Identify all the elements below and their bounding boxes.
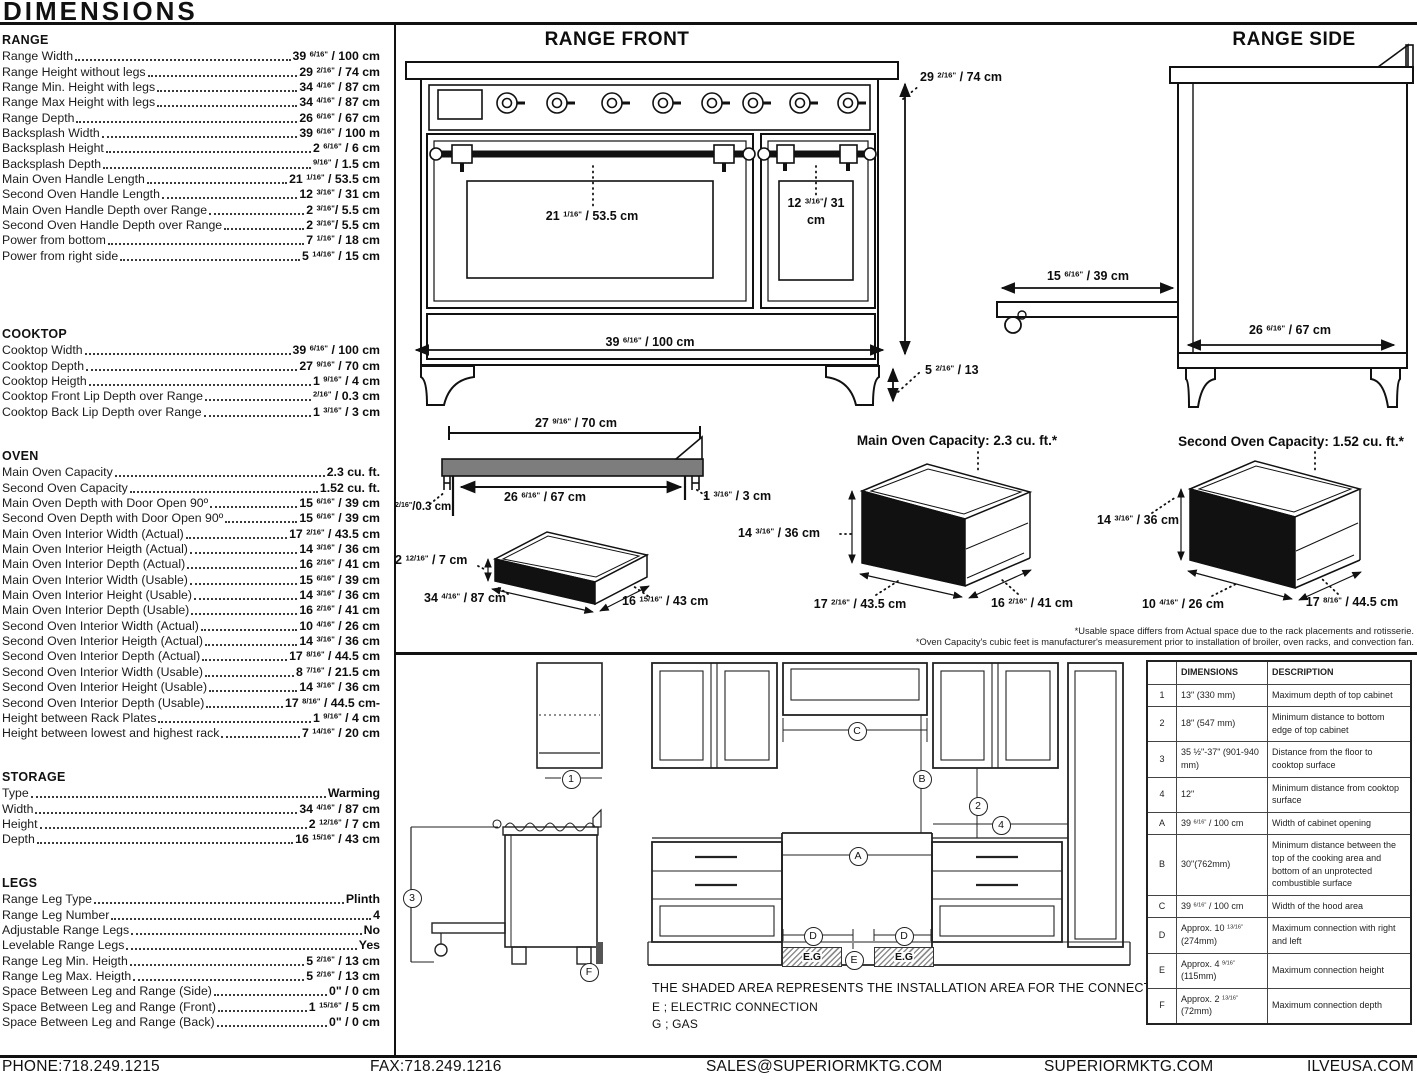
spec-row: Height 2 12/16" / 7 cm [2,816,380,831]
row-id: A [1147,812,1177,835]
second-oven-width-dim: 10 4/16" / 26 cm [1142,597,1224,611]
dotted-leader [210,506,297,508]
cooktop-inner-dim: 26 6/16" / 67 cm [504,490,586,504]
spec-value: Yes [359,938,380,952]
spec-value: 39 6/16" / 100 cm [293,343,381,357]
dotted-leader [190,583,297,585]
spec-value: 10 4/16" / 26 cm [299,619,380,633]
spec-label: Power from right side [2,249,118,263]
spec-label: Main Oven Interior Width (Actual) [2,527,184,541]
range-front-title: RANGE FRONT [545,29,690,51]
spec-label: Space Between Leg and Range (Front) [2,1000,216,1014]
callout-A: A [849,847,868,866]
spec-label: Range Leg Min. Heigth [2,954,128,968]
spec-label: Second Oven Interior Height (Usable) [2,680,207,694]
dotted-leader [191,613,297,615]
oven-spec-list: Main Oven Capacity 2.3 cu. ft. Second Ov… [2,464,380,740]
second-oven-height-dim: 14 3/16" / 36 cm [1097,513,1179,527]
spec-label: Second Oven Interior Width (Actual) [2,619,199,633]
spec-label: Range Leg Max. Heigth [2,969,131,983]
dotted-leader [217,1025,327,1027]
callout-3: 3 [403,889,422,908]
spec-row: Height between Rack Plates 1 9/16" / 4 c… [2,710,380,725]
callout-B: B [913,770,932,789]
spec-row: Main Oven Depth with Door Open 90º 15 6/… [2,495,380,510]
callout-C: C [848,722,867,741]
spec-value: 7 1/16" / 18 cm [306,233,380,247]
table-corner [1147,661,1177,684]
dotted-leader [148,75,298,77]
spec-row: Main Oven Capacity 2.3 cu. ft. [2,464,380,479]
table-row: 2 18" (547 mm) Minimum distance to botto… [1147,707,1411,742]
table-header-dimensions: DIMENSIONS [1177,661,1268,684]
spec-row: Range Leg Max. Heigth 5 2/16" / 13 cm [2,968,380,983]
row-id: 4 [1147,777,1177,812]
spec-value: 1 3/16" / 3 cm [313,405,380,419]
spec-value: 16 15/16" / 43 cm [295,832,380,846]
dotted-leader [187,567,297,569]
spec-row: Space Between Leg and Range (Front) 1 15… [2,998,380,1013]
spec-value: 15 6/16" / 39 cm [299,511,380,525]
spec-value: Warming [328,786,380,800]
dotted-leader [157,105,297,107]
callout-E: E [845,951,864,970]
spec-row: Second Oven Depth with Door Open 90º 15 … [2,510,380,525]
main-oven-handle [430,145,755,172]
section-heading: STORAGE [2,770,380,784]
spec-row: Backsplash Depth 9/16" / 1.5 cm [2,155,380,170]
dotted-leader [115,475,325,477]
spec-value: 14 3/16" / 36 cm [299,680,380,694]
top-diagrams-drawing [394,22,1417,655]
row-id: 1 [1147,684,1177,707]
section-heading: RANGE [2,33,380,47]
main-oven-capacity-drawing [840,452,1031,598]
dotted-leader [108,243,304,245]
row-dimension: 18" (547 mm) [1177,707,1268,742]
spec-value: 12 3/16" / 31 cm [299,187,380,201]
spec-value: 26 6/16" / 67 cm [299,111,380,125]
row-id: C [1147,895,1177,918]
table-header-description: DESCRIPTION [1268,661,1412,684]
leg-height-dim: 5 2/16" / 13 [925,363,979,377]
section-oven: OVEN Main Oven Capacity 2.3 cu. ft. Seco… [2,449,380,740]
spec-label: Height between Rack Plates [2,711,156,725]
spec-value: 17 8/16" / 44.5 cm [289,649,380,663]
spec-value: 14 3/16" / 36 cm [299,588,380,602]
spec-label: Range Leg Type [2,892,92,906]
shaded-area-label: E.G [894,952,914,963]
spec-value: 1 9/16" / 4 cm [313,374,380,388]
section-range: RANGE Range Width 39 6/16" / 100 cm Rang… [2,33,380,263]
spec-row: Cooktop Front Lip Depth over Range 2/16"… [2,388,380,403]
section-heading: COOKTOP [2,327,380,341]
section-cooktop: COOKTOP Cooktop Width 39 6/16" / 100 cm … [2,327,380,419]
spec-row: Range Depth 26 6/16" / 67 cm [2,109,380,124]
callout-4: 4 [992,816,1011,835]
cooktop-spec-list: Cooktop Width 39 6/16" / 100 cm Cooktop … [2,342,380,419]
spec-value: 27 9/16" / 70 cm [299,359,380,373]
dotted-leader [111,918,371,920]
dimensions-table: DIMENSIONS DESCRIPTION 1 13" (330 mm) Ma… [1146,660,1412,1025]
spec-value: 9/16" / 1.5 cm [313,157,380,171]
dotted-leader [120,259,300,261]
dotted-leader [224,228,304,230]
dotted-leader [35,812,297,814]
dotted-leader [133,979,304,981]
footer-phone: PHONE:718.249.1215 [2,1058,160,1076]
row-dimension: 13" (330 mm) [1177,684,1268,707]
spec-label: Second Oven Capacity [2,481,128,495]
main-oven-depth-dim: 16 2/16" / 41 cm [991,596,1073,610]
dotted-leader [194,598,297,600]
spec-row: Second Oven Interior Depth (Actual) 17 8… [2,648,380,663]
spec-row: Second Oven Interior Depth (Usable) 17 8… [2,694,380,709]
table-header-row: DIMENSIONS DESCRIPTION [1147,661,1411,684]
spec-label: Backsplash Depth [2,157,101,171]
front-left-leg [421,366,474,405]
spec-row: Second Oven Capacity 1.52 cu. ft. [2,479,380,494]
range-depth-dim: 26 6/16" / 67 cm [1249,323,1331,337]
spec-row: Cooktop Back Lip Depth over Range 1 3/16… [2,403,380,418]
cooktop-slab [442,459,703,476]
tall-cabinet [1068,663,1123,947]
dotted-leader [89,384,311,386]
spec-label: Range Depth [2,111,74,125]
table-row: 3 35 ½"-37" (901-940 mm) Distance from t… [1147,742,1411,777]
section-storage: STORAGE Type Warming Width 34 4/16" / 87… [2,770,380,846]
section-heading: OVEN [2,449,380,463]
main-handle-dim: 21 1/16" / 53.5 cm [546,209,638,223]
row-id: B [1147,835,1177,895]
spec-value: 15 6/16" / 39 cm [299,573,380,587]
row-dimension: Approx. 10 13/16" (274mm) [1177,918,1268,953]
spec-value: No [364,923,380,937]
row-id: D [1147,918,1177,953]
spec-label: Cooktop Front Lip Depth over Range [2,389,203,403]
dotted-leader [214,994,327,996]
callout-2: 2 [969,797,988,816]
spec-row: Main Oven Interior Width (Actual) 17 2/1… [2,525,380,540]
footer-site: SUPERIORMKTG.COM [1044,1058,1213,1076]
spec-row: Second Oven Interior Width (Usable) 8 7/… [2,663,380,678]
row-dimension: Approx. 4 9/16" (115mm) [1177,953,1268,988]
spec-row: Second Oven Interior Height (Usable) 14 … [2,679,380,694]
dotted-leader [37,842,293,844]
spec-label: Power from bottom [2,233,106,247]
spec-value: 2 6/16" / 6 cm [313,141,380,155]
footer-email: SALES@SUPERIORMKTG.COM [706,1058,942,1076]
drawer-depth-dim: 16 15/16" / 43 cm [622,594,708,608]
spec-value: 17 8/16" / 44.5 cm- [285,696,380,710]
table-row: A 39 6/16" / 100 cm Width of cabinet ope… [1147,812,1411,835]
spec-label: Backsplash Height [2,141,104,155]
spec-row: Cooktop Width 39 6/16" / 100 cm [2,342,380,357]
shaded-area-label: E.G [802,952,822,963]
side-right-leg [1371,368,1400,407]
spec-label: Cooktop Depth [2,359,84,373]
spec-label: Second Oven Interior Depth (Actual) [2,649,200,663]
dotted-leader [158,721,311,723]
spec-row: Main Oven Interior Height (Usable) 14 3/… [2,587,380,602]
spec-row: Second Oven Interior Width (Actual) 10 4… [2,617,380,632]
spec-row: Range Leg Type Plinth [2,891,380,906]
spec-sheet: DIMENSIONS RANGE Range Width 39 6/16" / … [0,0,1417,1080]
row-description: Minimum distance to bottom edge of top c… [1268,707,1412,742]
control-display [438,90,482,119]
control-knobs [497,93,866,113]
row-description: Width of the hood area [1268,895,1412,918]
storage-spec-list: Type Warming Width 34 4/16" / 87 cm Heig… [2,785,380,846]
spec-row: Levelable Range Legs Yes [2,937,380,952]
spec-row: Cooktop Depth 27 9/16" / 70 cm [2,357,380,372]
spec-row: Space Between Leg and Range (Back) 0" / … [2,1014,380,1029]
main-oven-width-dim: 17 2/16" / 43.5 cm [814,597,906,611]
spec-row: Backsplash Width 39 6/16" / 100 m [2,125,380,140]
installation-note: THE SHADED AREA REPRESENTS THE INSTALLAT… [652,981,1187,995]
row-description: Minimum distance between the top of the … [1268,835,1412,895]
dotted-leader [85,353,291,355]
spec-value: 14 3/16" / 36 cm [299,634,380,648]
spec-row: Height between lowest and highest rack 7… [2,725,380,740]
door-wheel [435,944,447,956]
spec-label: Second Oven Interior Heigth (Actual) [2,634,203,648]
spec-value: 15 6/16" / 39 cm [299,496,380,510]
range-width-dim: 39 6/16" / 100 cm [606,335,695,349]
spec-value: 0" / 0 cm [329,1015,380,1029]
spec-value: 0" / 0 cm [329,984,380,998]
side-view-drawing [411,663,603,965]
row-description: Distance from the floor to cooktop surfa… [1268,742,1412,777]
table-row: 1 13" (330 mm) Maximum depth of top cabi… [1147,684,1411,707]
dotted-leader [209,690,297,692]
dotted-leader [130,491,318,493]
side-left-leg [1186,368,1215,407]
spec-label: Second Oven Depth with Door Open 90º [2,511,223,525]
spec-label: Main Oven Depth with Door Open 90º [2,496,208,510]
spec-label: Range Max Height with legs [2,95,155,109]
spec-value: 2 3/16"/ 5.5 cm [306,203,380,217]
drawer-width-dim: 34 4/16" / 87 cm [424,591,506,605]
spec-row: Main Oven Handle Depth over Range 2 3/16… [2,201,380,216]
door-open-depth-dim: 15 6/16" / 39 cm [1047,269,1129,283]
second-handle-dim: 12 3/16"/ 31 cm [778,195,854,229]
spec-label: Cooktop Back Lip Depth over Range [2,405,202,419]
row-id: E [1147,953,1177,988]
spec-row: Range Leg Number 4 [2,906,380,921]
table-row: F Approx. 2 13/16" (72mm) Maximum connec… [1147,988,1411,1024]
front-lip-dim: 2/16"/0.3 cm [395,501,451,513]
spec-row: Main Oven Handle Length 21 1/16" / 53.5 … [2,171,380,186]
row-dimension: 35 ½"-37" (901-940 mm) [1177,742,1268,777]
second-oven-capacity-drawing [1152,452,1361,600]
row-dimension: 30"(762mm) [1177,835,1268,895]
table-body: 1 13" (330 mm) Maximum depth of top cabi… [1147,684,1411,1024]
spec-label: Space Between Leg and Range (Side) [2,984,212,998]
dotted-leader [221,736,300,738]
row-description: Maximum connection depth [1268,988,1412,1024]
dotted-leader [202,659,287,661]
spec-row: Main Oven Interior Heigth (Actual) 14 3/… [2,541,380,556]
open-door-side [432,923,505,933]
spec-row: Main Oven Interior Depth (Usable) 16 2/1… [2,602,380,617]
spec-label: Main Oven Interior Height (Usable) [2,588,192,602]
dotted-leader [126,948,356,950]
spec-label: Levelable Range Legs [2,938,124,952]
cooktop-width-dim: 27 9/16" / 70 cm [535,416,617,430]
spec-value: 34 4/16" / 87 cm [299,802,380,816]
spec-label: Range Leg Number [2,908,109,922]
legend-gas: G ; GAS [652,1017,698,1031]
spec-row: Range Min. Height with legs 34 4/16" / 8… [2,79,380,94]
callout-D-left: D [804,927,823,946]
spec-value: 5 2/16" / 13 cm [306,969,380,983]
spec-value: 34 4/16" / 87 cm [299,80,380,94]
drawer-height-dim: 2 12/16" / 7 cm [395,553,467,567]
spec-value: 1.52 cu. ft. [320,481,380,495]
spec-label: Main Oven Interior Depth (Actual) [2,557,185,571]
dotted-leader [186,537,287,539]
callout-D-right: D [895,927,914,946]
spec-value: 39 6/16" / 100 cm [293,49,381,63]
spec-row: Main Oven Interior Depth (Actual) 16 2/1… [2,556,380,571]
range-height-dim: 29 2/16" / 74 cm [920,70,1002,84]
shaded-connection-area-left: E.G [782,947,842,967]
spec-label: Range Height without legs [2,65,146,79]
spec-row: Width 34 4/16" / 87 cm [2,800,380,815]
spec-row: Power from right side 5 14/16" / 15 cm [2,247,380,262]
spec-label: Adjustable Range Legs [2,923,129,937]
dotted-leader [106,151,311,153]
dotted-leader [102,136,298,138]
spec-label: Cooktop Heigth [2,374,87,388]
spec-label: Depth [2,832,35,846]
spec-row: Second Oven Handle Depth over Range 2 3/… [2,217,380,232]
hood-cabinet [783,663,927,715]
spec-row: Range Height without legs 29 2/16" / 74 … [2,63,380,78]
dotted-leader [201,629,298,631]
range-front-drawing [406,62,920,405]
spec-label: Main Oven Handle Depth over Range [2,203,207,217]
spec-label: Main Oven Interior Depth (Usable) [2,603,189,617]
footnote-1: *Usable space differs from Actual space … [1075,626,1414,636]
range-side-title: RANGE SIDE [1232,29,1355,51]
row-dimension: Approx. 2 13/16" (72mm) [1177,988,1268,1024]
dotted-leader [94,902,344,904]
dotted-leader [218,1010,307,1012]
legs-spec-list: Range Leg Type Plinth Range Leg Number 4… [2,891,380,1029]
spec-row: Depth 16 15/16" / 43 cm [2,831,380,846]
spec-label: Main Oven Handle Length [2,172,145,186]
range-spec-list: Range Width 39 6/16" / 100 cm Range Heig… [2,48,380,263]
spec-value: 14 3/16" / 36 cm [299,542,380,556]
main-oven-glass [467,181,713,278]
footnote-2: *Oven Capacity's cubic feet is manufactu… [916,637,1414,647]
dotted-leader [206,706,283,708]
front-right-leg [826,366,879,405]
elevation-drawing [648,663,1130,965]
dotted-leader [205,675,294,677]
dotted-leader [190,552,297,554]
row-dimension: 12" [1177,777,1268,812]
spec-label: Type [2,786,29,800]
row-id: 2 [1147,707,1177,742]
spec-value: Plinth [346,892,380,906]
second-oven-depth-dim: 17 8/16" / 44.5 cm [1306,595,1398,609]
dotted-leader [147,182,287,184]
spec-value: 2/16" / 0.3 cm [313,389,380,403]
row-dimension: 39 6/16" / 100 cm [1177,895,1268,918]
spec-value: 21 1/16" / 53.5 cm [289,172,380,186]
dotted-leader [86,369,297,371]
spec-value: 5 2/16" / 13 cm [306,954,380,968]
spec-value: 16 2/16" / 41 cm [299,603,380,617]
footer-site2: ILVEUSA.COM [1307,1058,1414,1076]
spec-value: 2.3 cu. ft. [327,465,380,479]
spec-row: Second Oven Interior Heigth (Actual) 14 … [2,633,380,648]
spec-value: 8 7/16" / 21.5 cm [296,665,380,679]
spec-value: 39 6/16" / 100 m [299,126,380,140]
spec-value: 2 3/16"/ 5.5 cm [306,218,380,232]
spec-value: 17 2/16" / 43.5 cm [289,527,380,541]
spec-label: Space Between Leg and Range (Back) [2,1015,215,1029]
spec-row: Main Oven Interior Width (Usable) 15 6/1… [2,571,380,586]
back-lip-dim: 1 3/16" / 3 cm [703,489,771,503]
spec-value: 7 14/16" / 20 cm [302,726,380,740]
section-heading: LEGS [2,876,380,890]
spec-label: Second Oven Handle Length [2,187,160,201]
table-row: E Approx. 4 9/16" (115mm) Maximum connec… [1147,953,1411,988]
spec-value: 29 2/16" / 74 cm [299,65,380,79]
spec-value: 4 [373,908,380,922]
spec-value: 2 12/16" / 7 cm [309,817,380,831]
door-hinge [1005,317,1021,333]
connection-block [596,942,603,964]
spec-label: Second Oven Handle Depth over Range [2,218,222,232]
table-row: B 30"(762mm) Minimum distance between th… [1147,835,1411,895]
row-description: Maximum depth of top cabinet [1268,684,1412,707]
dotted-leader [162,197,297,199]
second-oven-handle [758,145,876,171]
row-description: Maximum connection height [1268,953,1412,988]
spec-label: Main Oven Interior Heigth (Actual) [2,542,188,556]
spec-label: Width [2,802,33,816]
row-dimension: 39 6/16" / 100 cm [1177,812,1268,835]
spec-label: Height [2,817,38,831]
spec-label: Cooktop Width [2,343,83,357]
spec-row: Power from bottom 7 1/16" / 18 cm [2,232,380,247]
spec-row: Space Between Leg and Range (Side) 0" / … [2,983,380,998]
spec-row: Adjustable Range Legs No [2,922,380,937]
spec-row: Second Oven Handle Length 12 3/16" / 31 … [2,186,380,201]
main-oven-capacity-title: Main Oven Capacity: 2.3 cu. ft.* [857,433,1057,448]
table-row: C 39 6/16" / 100 cm Width of the hood ar… [1147,895,1411,918]
shaded-connection-area-right: E.G [874,947,934,967]
row-id: 3 [1147,742,1177,777]
dotted-leader [204,415,311,417]
spec-value: 1 9/16" / 4 cm [313,711,380,725]
section-legs: LEGS Range Leg Type Plinth Range Leg Num… [2,876,380,1029]
open-door [997,302,1178,317]
spec-label: Height between lowest and highest rack [2,726,219,740]
dotted-leader [225,521,297,523]
row-description: Minimum distance from cooktop surface [1268,777,1412,812]
spec-row: Range Max Height with legs 34 4/16" / 87… [2,94,380,109]
spec-label: Second Oven Interior Width (Usable) [2,665,203,679]
spec-label: Main Oven Capacity [2,465,113,479]
dotted-leader [130,964,304,966]
main-oven-height-dim: 14 3/16" / 36 cm [738,526,820,540]
